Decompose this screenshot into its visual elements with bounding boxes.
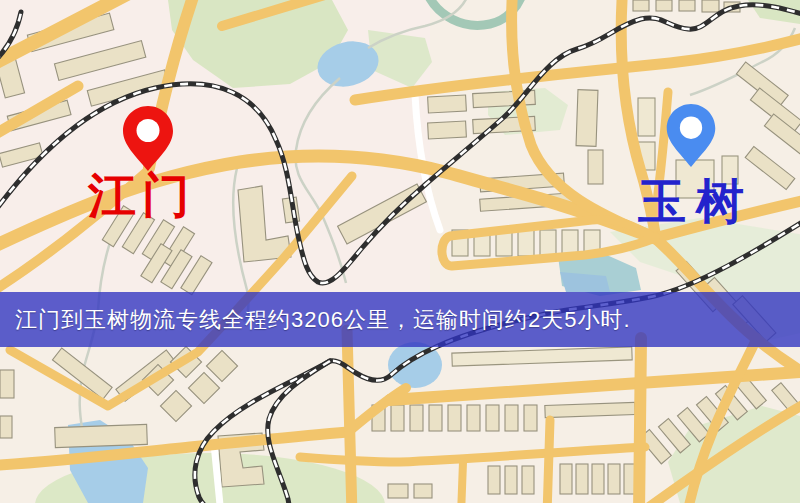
origin-label: 江门 <box>88 172 196 220</box>
route-info-banner: 江门到玉树物流专线全程约3206公里，运输时间约2天5小时. <box>0 292 800 347</box>
route-info-text: 江门到玉树物流专线全程约3206公里，运输时间约2天5小时. <box>0 305 631 335</box>
map-graphic: 江门 玉树 江门到玉树物流专线全程约3206公里，运输时间约2天5小时. <box>0 0 800 503</box>
destination-label: 玉树 <box>638 178 754 226</box>
map-canvas <box>0 0 800 503</box>
